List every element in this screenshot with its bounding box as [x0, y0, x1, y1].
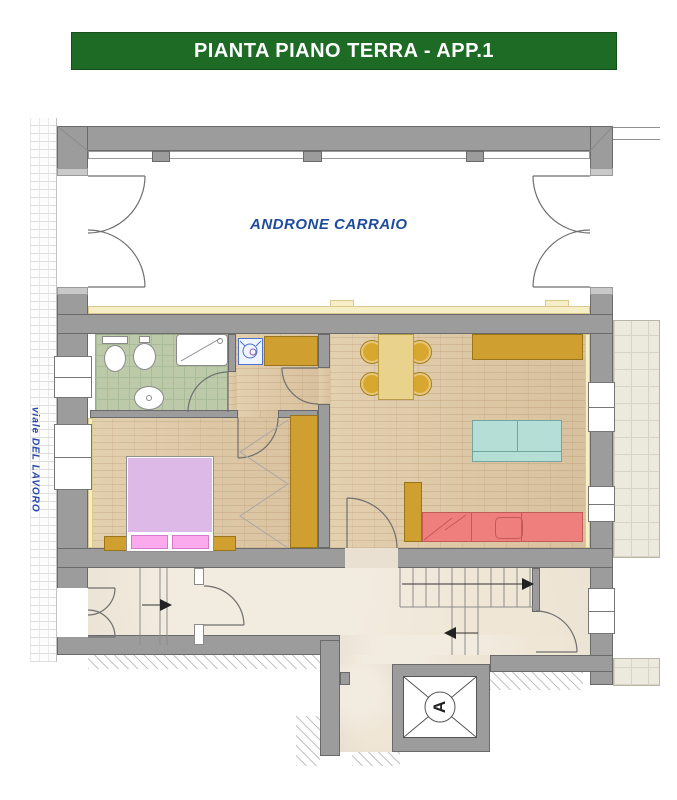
kitchen-counter [422, 512, 583, 542]
washbasin-icon [134, 386, 164, 410]
wall-bathroom-south [90, 410, 238, 418]
jamb-plate-right-top [590, 168, 613, 176]
lift-lobby-floor-upper [340, 655, 490, 664]
neighbour-wall-band [613, 127, 660, 140]
jamb-plate-left-top [57, 168, 88, 176]
dining-table [378, 334, 414, 400]
building-entrance-opening [57, 588, 88, 637]
nightstand-right [212, 536, 236, 551]
wall-lobby-west [320, 640, 340, 756]
nightstand-left [104, 536, 128, 551]
kitchen-tall-cabinet [404, 482, 422, 542]
hatch-area-left [88, 655, 320, 669]
toilet-icon [104, 345, 126, 372]
stair-hall-floor-lower [340, 635, 590, 655]
garage-door-left [88, 176, 145, 287]
sofa-seat-line [473, 451, 561, 452]
wall-apartment-top [57, 314, 613, 334]
street-label: viale DEL LAVORO [24, 378, 46, 542]
hatch-area-right [490, 672, 583, 690]
toilet-tank-icon [102, 336, 128, 344]
bedroom-doorway-floor [238, 410, 278, 418]
sofa [472, 420, 562, 462]
wall-stairhall-bottom [490, 655, 613, 672]
window-kitchen [588, 486, 615, 522]
wall-stub [340, 672, 350, 685]
garage-door-right [533, 176, 590, 287]
elevator-label: A [425, 692, 455, 722]
pillow-left [131, 535, 168, 549]
bidet-icon [133, 343, 156, 370]
wall-stair-right [532, 568, 540, 612]
hall-label: ANDRONE CARRAIO [250, 216, 470, 238]
pilaster-2 [303, 151, 322, 162]
double-bed [126, 456, 214, 552]
window-stairhall [588, 588, 615, 634]
plan-title: PIANTA PIANO TERRA - APP.1 [194, 40, 494, 63]
hatch-area-lower [352, 752, 400, 766]
wardrobe [290, 415, 318, 548]
window-living-1 [588, 382, 615, 432]
wall-bathroom-right [228, 334, 236, 372]
sofa-cushion-line [517, 421, 518, 451]
partition-stub-bottom [194, 624, 204, 645]
bathroom-doorway-floor [228, 372, 236, 412]
cream-strip-hall [88, 306, 590, 314]
patio-tiles [613, 320, 660, 558]
bidet-tap-icon [139, 336, 150, 343]
title-banner: PIANTA PIANO TERRA - APP.1 [71, 32, 617, 70]
window-bathroom [54, 356, 92, 398]
shower-tray-icon [176, 334, 228, 366]
jamb-plate-right-bottom [590, 287, 613, 295]
wall-living-west-lower [318, 404, 330, 548]
pillow-right [172, 535, 209, 549]
window-bedroom [54, 424, 92, 490]
pilaster-1 [152, 151, 170, 162]
hallway-cabinet [264, 336, 318, 366]
wall-top [57, 126, 613, 151]
apartment-entrance-opening [345, 548, 398, 568]
pilaster-3 [466, 151, 484, 162]
patio-tiles-lower [613, 658, 660, 686]
living-doorway-floor [318, 368, 330, 404]
stair-hall-floor [88, 568, 590, 635]
kitchen-sink-icon [495, 517, 523, 539]
sideboard [472, 334, 583, 360]
floor-plan: PIANTA PIANO TERRA - APP.1 viale DEL LAV… [0, 0, 677, 800]
hatch-area-lower-left [296, 716, 320, 766]
washing-machine-icon [238, 338, 263, 365]
bed-mattress [128, 458, 212, 532]
wall-living-west-upper [318, 334, 330, 368]
partition-stub-top [194, 568, 204, 585]
counter-divider-1 [471, 513, 472, 541]
jamb-plate-left-bottom [57, 287, 88, 295]
